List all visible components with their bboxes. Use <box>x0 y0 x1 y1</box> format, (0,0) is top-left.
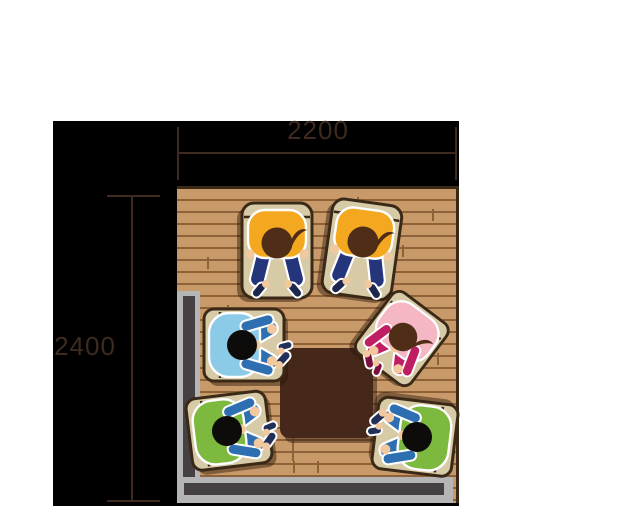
person-yellow-left <box>237 203 312 302</box>
width-extension-left <box>177 127 179 180</box>
person-green-left <box>185 389 283 476</box>
width-dimension-label: 2200 <box>258 117 378 143</box>
depth-dimension-label: 2400 <box>45 333 125 359</box>
depth-extension-bottom <box>107 500 160 502</box>
width-dimension-line <box>178 152 456 154</box>
width-extension-right <box>455 127 457 180</box>
depth-extension-top <box>107 195 160 197</box>
person-blue <box>204 309 293 386</box>
person-yellow-right <box>315 197 403 305</box>
person-pink <box>343 285 452 397</box>
person-green-right <box>362 390 460 477</box>
page: { "diagram": { "type": "floor-plan-top-v… <box>0 0 640 506</box>
depth-dimension-line <box>131 196 133 501</box>
people-layer <box>0 0 640 506</box>
